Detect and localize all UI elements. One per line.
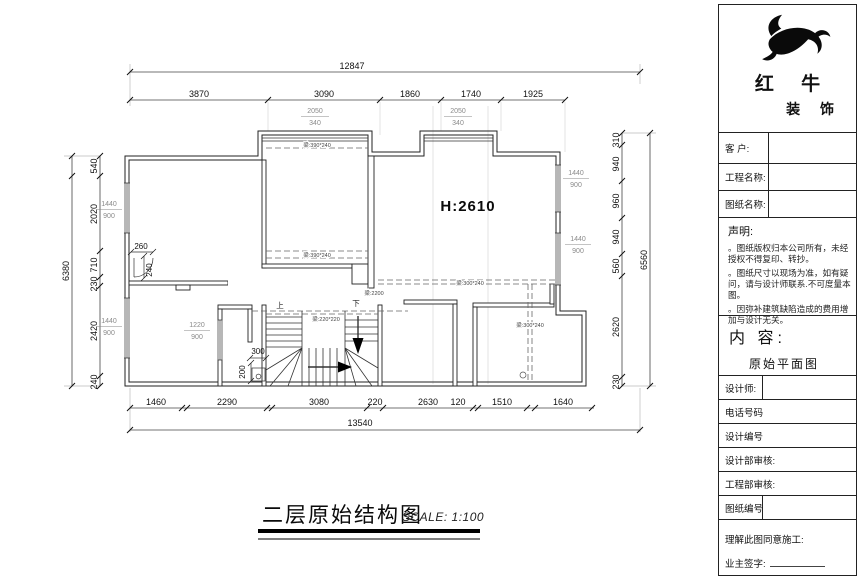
window-label: 1220: [189, 322, 205, 329]
dim-label: 230: [611, 374, 621, 389]
field-label: 客 户:: [719, 133, 769, 163]
beam-label: 梁:2200: [364, 289, 383, 297]
dim-bottom-total: 13540: [347, 418, 372, 428]
dim-label: 3870: [189, 89, 209, 99]
row-label: 图纸编号: [719, 496, 763, 519]
signature-line: [770, 557, 825, 567]
window-label: 1440: [101, 201, 117, 208]
dim-right-total: 6560: [639, 250, 649, 270]
misc-symbols: [520, 372, 526, 378]
dim-left-total: 6380: [61, 261, 71, 281]
statement-block: 声明: 。图纸版权归本公司所有，未经授权不得复印、转抄。 。图纸尺寸以现场为准，…: [719, 217, 856, 315]
beam-label: 梁:390*240: [303, 251, 331, 259]
dim-label: 710: [89, 257, 99, 272]
walls: [125, 131, 586, 386]
drawing-title-group: 二层原始结构图 SCALE: 1:100: [258, 504, 484, 539]
owner-signature-label: 业主签字:: [725, 559, 766, 570]
beam-lines: [252, 141, 556, 382]
titleblock-row-eng-audit: 工程部审核:: [719, 471, 856, 495]
titleblock: 红 牛 装 饰 客 户: 工程名称: 图纸名称: 声明: 。图纸版权归本公司所有…: [718, 4, 857, 576]
dim-label: 2290: [217, 397, 237, 407]
window-label: 1440: [568, 170, 584, 177]
titleblock-footer: 理解此图同意施工: 业主签字:: [719, 519, 856, 576]
field-label: 图纸名称:: [719, 191, 769, 217]
titleblock-row-sheet-no: 图纸编号: [719, 495, 856, 519]
room-height-label: H:2610: [440, 198, 495, 215]
beam-label: 梁:220*220: [312, 315, 340, 323]
content-block: 内 容: 原始平面图: [719, 315, 856, 375]
interior-walls: [129, 156, 554, 386]
titleblock-row-phone: 电话号码: [719, 399, 856, 423]
window-label: 2050: [450, 108, 466, 115]
floor-plan-canvas: 12847 3870 3090 1860 1740 1925 13540 146…: [0, 0, 712, 580]
dim-label: 2020: [89, 204, 99, 224]
content-label: 内 容:: [729, 324, 850, 348]
row-label: 设计师:: [719, 376, 763, 399]
dim-label: 940: [611, 156, 621, 171]
extension-lines: [64, 64, 656, 432]
window-label: 1440: [570, 236, 586, 243]
titleblock-row-designer: 设计师:: [719, 375, 856, 399]
window-label: 900: [570, 182, 582, 189]
stair-labels: 上 下: [276, 299, 360, 310]
row-label: 电话号码: [719, 405, 763, 419]
beam-label: 梁:300*240: [456, 279, 484, 287]
dim-label: 2620: [611, 317, 621, 337]
dim-label: 2630: [418, 397, 438, 407]
drawing-scale: SCALE: 1:100: [402, 510, 484, 524]
dim-label: 1925: [523, 89, 543, 99]
dim-label: 960: [611, 193, 621, 208]
dim-label: 1460: [146, 397, 166, 407]
titleblock-row-design-no: 设计编号: [719, 423, 856, 447]
dim-label: 940: [611, 229, 621, 244]
dim-label: 1510: [492, 397, 512, 407]
footer-sign-label: 业主签字:: [725, 556, 852, 570]
dim-label: 1740: [461, 89, 481, 99]
drawing-title: 二层原始结构图: [262, 504, 423, 527]
titleblock-field-drawing: 图纸名称:: [719, 190, 856, 217]
titleblock-field-client: 客 户:: [719, 132, 856, 163]
footer-agree-text: 理解此图同意施工:: [725, 532, 852, 546]
content-value: 原始平面图: [749, 355, 850, 372]
window-label: 900: [103, 213, 115, 220]
dim-label: 240: [89, 374, 99, 389]
stair-arrows: [338, 338, 364, 373]
beam-label: 梁:300*240: [516, 321, 544, 329]
brand-subname: 装 饰: [719, 99, 856, 119]
company-logo: 红 牛 装 饰: [719, 5, 856, 132]
dim-label: 560: [611, 258, 621, 273]
window-label: 2050: [307, 108, 323, 115]
company-logo-bull-icon: [743, 11, 835, 69]
dim-label: 200: [238, 365, 247, 379]
dim-label: 240: [145, 263, 154, 277]
window-label: 900: [191, 334, 203, 341]
stair-up-label: 上: [276, 301, 284, 310]
dim-label: 120: [450, 397, 465, 407]
dim-top-total: 12847: [339, 61, 364, 71]
window-label: 900: [572, 248, 584, 255]
statement-item: 。图纸版权归本公司所有，未经授权不得复印、转抄。: [728, 243, 851, 266]
row-label: 设计编号: [719, 429, 763, 443]
statement-item: 。图纸尺寸以现场为准，如有疑问，请与设计师联系.不可度量本图。: [728, 268, 851, 302]
window-label: 340: [309, 120, 321, 127]
window-label: 900: [103, 330, 115, 337]
dim-label: 300: [251, 347, 265, 356]
dim-label: 230: [89, 276, 99, 291]
dim-label: 1860: [400, 89, 420, 99]
title-underline-bar: [258, 529, 480, 533]
statement-title: 声明:: [728, 223, 851, 239]
titleblock-field-project: 工程名称:: [719, 163, 856, 190]
dim-label: 2420: [89, 321, 99, 341]
dim-label: 1640: [553, 397, 573, 407]
dim-label: 3080: [309, 397, 329, 407]
titleblock-row-design-audit: 设计部审核:: [719, 447, 856, 471]
dim-label: 540: [89, 158, 99, 173]
dim-label: 3090: [314, 89, 334, 99]
window-label: 340: [452, 120, 464, 127]
row-label: 工程部审核:: [719, 477, 775, 491]
row-label: 设计部审核:: [719, 453, 775, 467]
dim-label: 220: [367, 397, 382, 407]
dim-label: 310: [611, 132, 621, 147]
dim-label: 260: [134, 242, 148, 251]
stair-down-label: 下: [352, 299, 360, 308]
beam-label: 梁:390*240: [303, 141, 331, 149]
brand-name: 红 牛: [719, 69, 856, 96]
field-label: 工程名称:: [719, 164, 769, 190]
window-label: 1440: [101, 318, 117, 325]
drawing-sheet: 12847 3870 3090 1860 1740 1925 13540 146…: [0, 0, 860, 580]
